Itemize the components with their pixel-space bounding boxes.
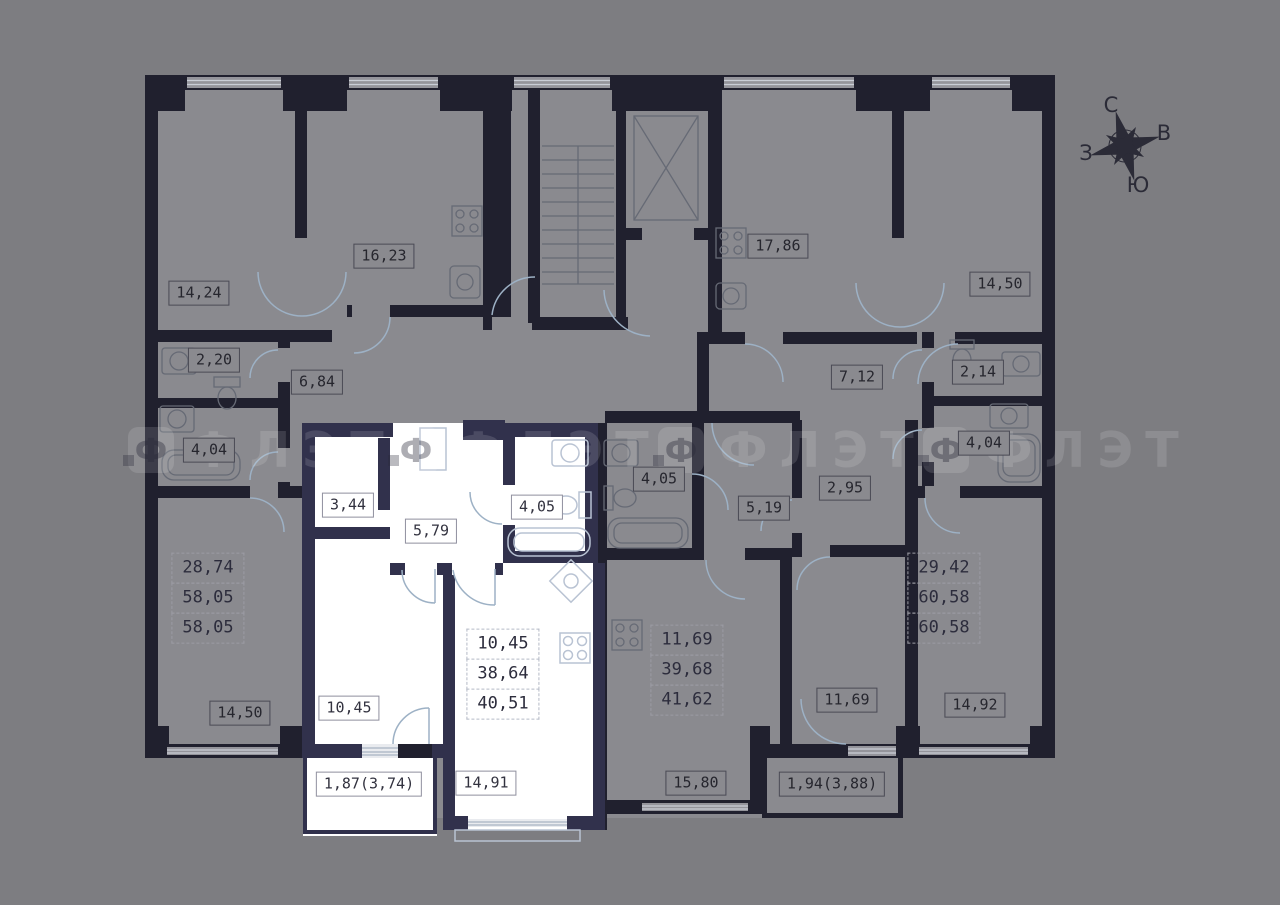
room-area-14-24: 14,24 — [168, 281, 229, 306]
apartment-summary-middle[interactable]: 11,6939,6841,62 — [650, 625, 723, 716]
room-area-4-05-middle: 4,05 — [633, 467, 685, 492]
room-area-3-44: 3,44 — [322, 493, 374, 518]
compass-north-label: С — [1104, 93, 1119, 117]
room-area-7-12: 7,12 — [831, 365, 883, 390]
apartment-area-value: 58,05 — [171, 583, 244, 614]
apartment-area-value: 40,51 — [466, 688, 539, 719]
balcony-area-1-87: 1,87(3,74) — [316, 772, 422, 797]
compass-rose-icon — [1081, 102, 1169, 190]
room-area-14-92: 14,92 — [944, 693, 1005, 718]
room-area-11-69: 11,69 — [816, 688, 877, 713]
room-area-14-91: 14,91 — [455, 771, 516, 796]
room-area-4-04-right: 4,04 — [958, 431, 1010, 456]
apartment-area-value: 29,42 — [907, 553, 980, 584]
room-area-17-86: 17,86 — [747, 234, 808, 259]
apartment-area-value: 38,64 — [466, 659, 539, 690]
apartment-area-value: 10,45 — [466, 629, 539, 660]
room-area-2-95: 2,95 — [819, 476, 871, 501]
compass-west-label: З — [1079, 141, 1092, 165]
compass-south-label: Ю — [1127, 173, 1150, 197]
room-area-2-14: 2,14 — [952, 360, 1004, 385]
apartment-area-value: 41,62 — [650, 684, 723, 715]
apartment-summary-right[interactable]: 29,4260,5860,58 — [907, 553, 980, 644]
apartment-area-value: 11,69 — [650, 625, 723, 656]
room-area-5-79: 5,79 — [405, 519, 457, 544]
apartment-summary-selected[interactable]: 10,4538,6440,51 — [466, 629, 539, 720]
compass-east-label: В — [1157, 121, 1171, 145]
apartment-area-value: 28,74 — [171, 553, 244, 584]
floor-plan: С В З Ю ФФЛЭТФФЛЭТФФЛЭТФФЛЭТ 14,2416,231… — [0, 0, 1280, 905]
room-area-14-50-top: 14,50 — [969, 272, 1030, 297]
compass: С В З Ю — [1079, 93, 1171, 197]
room-area-16-23: 16,23 — [353, 244, 414, 269]
room-area-15-80: 15,80 — [665, 771, 726, 796]
room-area-6-84: 6,84 — [291, 370, 343, 395]
room-area-4-05-selected: 4,05 — [511, 495, 563, 520]
apartment-area-value: 60,58 — [907, 612, 980, 643]
room-area-14-50-bottom: 14,50 — [209, 701, 270, 726]
apartment-summary-left[interactable]: 28,7458,0558,05 — [171, 553, 244, 644]
apartment-area-value: 58,05 — [171, 612, 244, 643]
apartment-area-value: 39,68 — [650, 655, 723, 686]
room-area-5-19: 5,19 — [738, 496, 790, 521]
room-area-4-04-left: 4,04 — [183, 438, 235, 463]
room-area-10-45: 10,45 — [318, 696, 379, 721]
apartment-area-value: 60,58 — [907, 583, 980, 614]
balcony-area-1-94: 1,94(3,88) — [779, 772, 885, 797]
room-area-2-20: 2,20 — [188, 348, 240, 373]
